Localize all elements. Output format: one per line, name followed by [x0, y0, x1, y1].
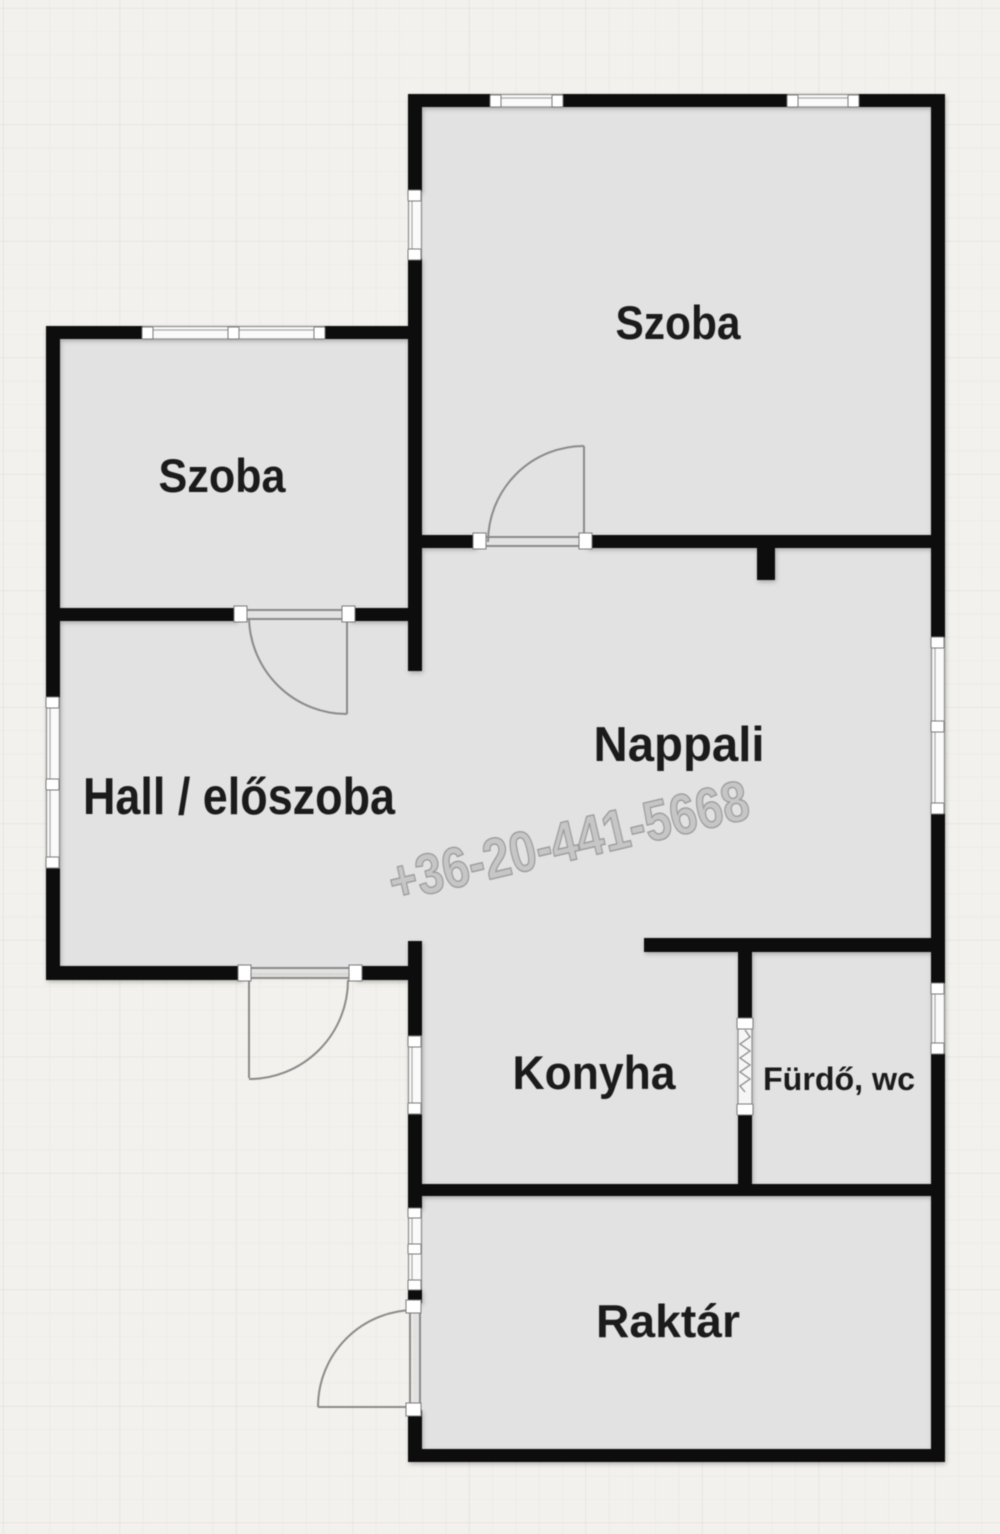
svg-text:Szoba: Szoba: [616, 296, 742, 349]
svg-text:Konyha: Konyha: [513, 1046, 677, 1099]
svg-text:Fürdő, wc: Fürdő, wc: [763, 1061, 915, 1097]
svg-text:Szoba: Szoba: [159, 449, 287, 502]
svg-text:Nappali: Nappali: [594, 718, 765, 772]
svg-text:Hall / előszoba: Hall / előszoba: [83, 768, 396, 826]
svg-text:Raktár: Raktár: [596, 1295, 740, 1347]
